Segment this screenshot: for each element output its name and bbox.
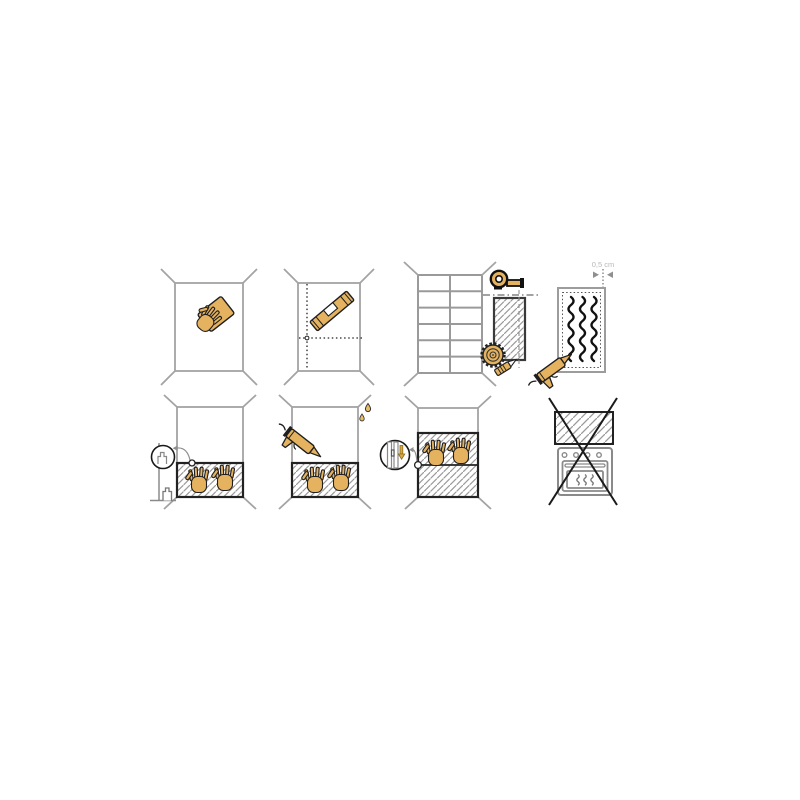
magnifier-detail	[381, 441, 410, 470]
zoom-arrow	[413, 450, 417, 463]
instruction-sheet: 0,5 cm	[0, 0, 800, 800]
wall-surface	[284, 269, 374, 385]
zoom-arrowhead-icon	[173, 446, 178, 451]
spacer-icon	[163, 488, 172, 501]
gap-measurement-label: 0,5 cm	[592, 260, 615, 269]
step-2-mark-guide-lines	[276, 258, 400, 394]
droplet-icon	[360, 404, 371, 421]
step-8-no-oven-warning	[533, 394, 637, 524]
step-5-position-panel	[138, 394, 268, 530]
intersection-marker	[305, 336, 309, 340]
tiled-wall	[404, 262, 496, 386]
seam-marker	[415, 462, 422, 469]
measuring-tape-icon	[491, 271, 524, 290]
step-1-clean-wall	[148, 258, 272, 394]
corner-marker	[189, 460, 195, 466]
magnifier-detail	[152, 446, 175, 469]
step-7-join-second-panel	[372, 394, 524, 534]
step-4-apply-adhesive: 0,5 cm	[536, 256, 646, 398]
step-3-measure-and-cut	[400, 256, 546, 398]
